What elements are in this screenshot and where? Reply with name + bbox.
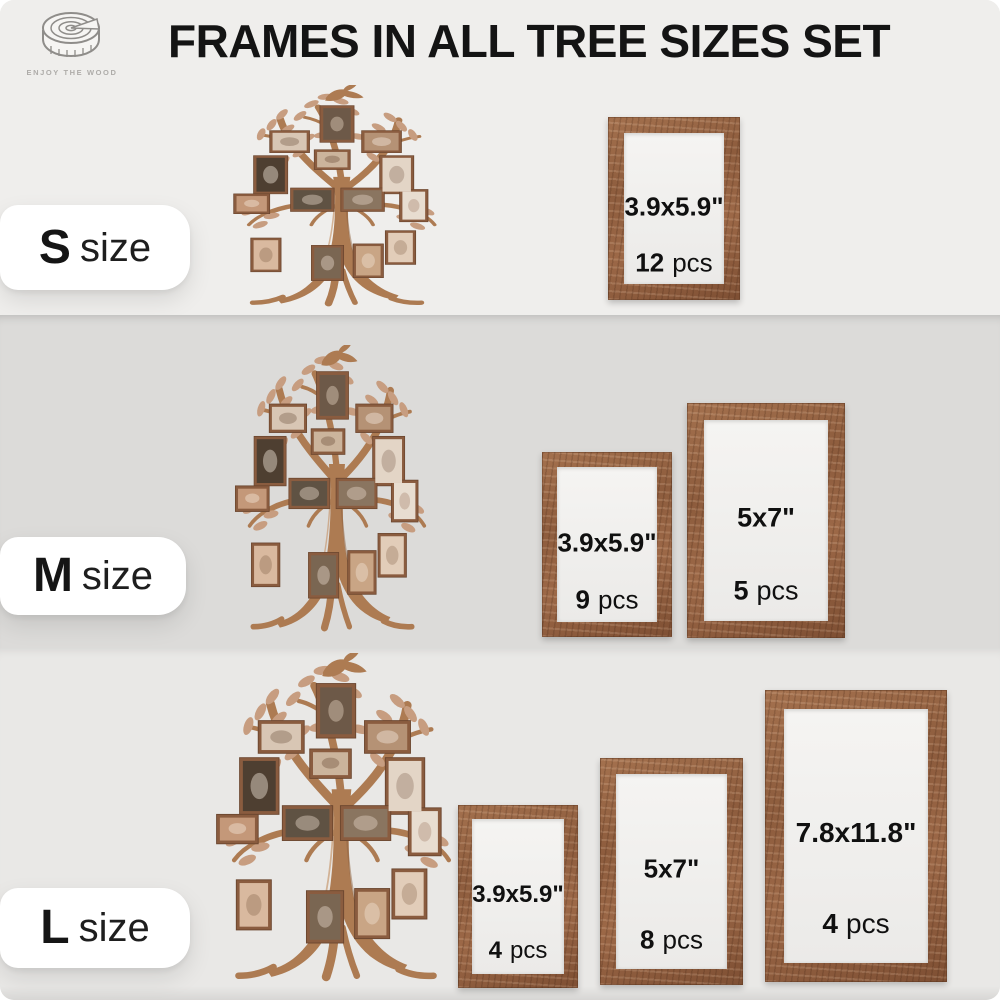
family-tree-s xyxy=(228,85,446,313)
frame-pcs-text: 12pcs xyxy=(608,248,740,279)
size-word: size xyxy=(79,908,150,948)
frame-pcs-text: 4pcs xyxy=(458,937,578,965)
spec-frame-l-3-9x5-9: 3.9x5.9" 4pcs xyxy=(458,805,578,988)
band-s-size: ENJOY THE WOOD FRAMES IN ALL TREE SIZES … xyxy=(0,0,1000,315)
spec-frame-s-3-9x5-9: 3.9x5.9" 12pcs xyxy=(608,117,740,300)
frame-pcs-text: 4pcs xyxy=(765,908,947,940)
frame-size-text: 3.9x5.9" xyxy=(542,527,672,558)
frame-size-text: 5x7" xyxy=(600,854,743,885)
frame-size-text: 5x7" xyxy=(687,503,845,534)
band-l-size: L size 3.9x5.9" 4pcs 5x7" 8pcs 7.8x11.8"… xyxy=(0,648,1000,1000)
size-label-m: M size xyxy=(0,537,186,615)
brand-name: ENJOY THE WOOD xyxy=(14,68,130,77)
page-title: FRAMES IN ALL TREE SIZES SET xyxy=(168,14,890,68)
frame-pcs-text: 9pcs xyxy=(542,585,672,616)
size-label-s: S size xyxy=(0,205,190,290)
frame-size-text: 7.8x11.8" xyxy=(765,817,947,849)
frame-pcs-text: 5pcs xyxy=(687,576,845,607)
frame-pcs-text: 8pcs xyxy=(600,924,743,955)
family-tree-m xyxy=(230,345,435,640)
size-letter: S xyxy=(39,224,71,272)
size-letter: M xyxy=(33,552,73,600)
spec-frame-l-7-8x11-8: 7.8x11.8" 4pcs xyxy=(765,690,947,982)
band-m-size: M size 3.9x5.9" 9pcs 5x7" 5pcs xyxy=(0,315,1000,648)
frame-size-text: 3.9x5.9" xyxy=(458,881,578,909)
size-letter: L xyxy=(40,904,69,952)
brand-logo: ENJOY THE WOOD xyxy=(14,6,130,77)
family-tree-l xyxy=(210,653,462,991)
wood-slice-icon xyxy=(27,6,117,62)
spec-frame-l-5x7: 5x7" 8pcs xyxy=(600,758,743,985)
product-infographic: ENJOY THE WOOD FRAMES IN ALL TREE SIZES … xyxy=(0,0,1000,1000)
size-label-l: L size xyxy=(0,888,190,968)
spec-frame-m-5x7: 5x7" 5pcs xyxy=(687,403,845,638)
size-word: size xyxy=(82,556,153,596)
spec-frame-m-3-9x5-9: 3.9x5.9" 9pcs xyxy=(542,452,672,637)
frame-size-text: 3.9x5.9" xyxy=(608,191,740,222)
size-word: size xyxy=(80,228,151,268)
